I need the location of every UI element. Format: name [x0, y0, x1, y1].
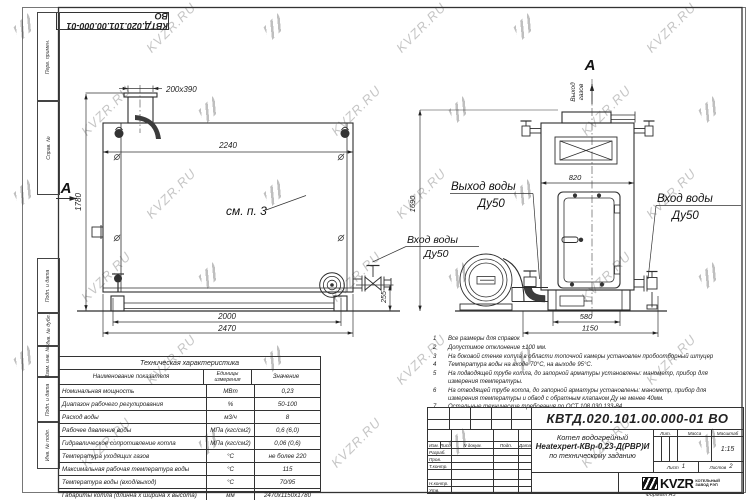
tech-table-header: Наименование показателя Единицы измерени…: [59, 370, 320, 385]
company-logo: KVZR КОТЕЛЬНЫЙ ЗАВОД РЭП: [642, 476, 720, 491]
mass-label: Масса: [677, 429, 711, 436]
table-row: Температура воды (вход/выход)°С70/95: [59, 476, 320, 489]
sig-row-prov: Пров.: [428, 455, 451, 462]
param-name: Номинальная мощность: [59, 385, 207, 397]
sig-row-razrab: Разраб.: [428, 448, 451, 455]
sig-row-nkontr: Н.контр.: [428, 479, 451, 486]
sig-row-utv: Утв.: [428, 486, 451, 493]
param-name: Максимальная рабочая температура воды: [59, 463, 207, 475]
sheets-cell: Листов 2: [698, 461, 743, 472]
table-row: Габариты котла (длинна х ширина х высота…: [59, 489, 320, 500]
boiler-side-view: [77, 85, 400, 311]
tech-table-header-cell: Единицы измерения: [204, 370, 252, 384]
title-block: КВТД.020.101.00.000-01 ВО Изм. Лист N до…: [427, 407, 744, 494]
side-column-box: Инв. № дубл.: [37, 312, 60, 347]
sig-col-list: Лист: [440, 441, 451, 448]
note-text: Температура воды на входе 70°С, на выход…: [448, 362, 737, 370]
param-value: 115: [255, 463, 320, 475]
front-overall-dim-label: 1150: [582, 324, 599, 333]
drawing-sheet: KVZR.RUKVZR.RUKVZR.RUKVZR.RUKVZR.RUKVZR.…: [0, 0, 750, 500]
note-number: 6: [433, 388, 448, 404]
company-name-line2: ЗАВОД РЭП: [695, 483, 720, 488]
water-inlet-left-label: Вход воды: [407, 234, 458, 246]
side-column-label: Справ. №: [46, 136, 52, 160]
note-number: 1: [433, 336, 448, 344]
param-unit: °С: [207, 463, 255, 475]
param-unit: МВт: [207, 385, 255, 397]
param-value: 50-100: [255, 398, 320, 410]
side-column-box: Подп. и дата: [37, 258, 60, 314]
table-row: Номинальная мощностьМВт0,23: [59, 385, 320, 398]
sheet-label: Лист: [667, 465, 679, 470]
doc-number: КВТД.020.101.00.000-01 ВО: [547, 411, 729, 426]
front-base-dim-label: 580: [580, 312, 593, 321]
kvzr-logo-icon: [642, 477, 658, 490]
side-column-label: Перв. примен.: [46, 40, 52, 74]
param-unit: МПа (кгс/см2): [207, 437, 255, 449]
sheet-value: 1: [682, 464, 685, 470]
param-unit: МПа (кгс/см2): [207, 424, 255, 436]
product-name-line2: Heatexpert-КВр-0,23-Д(РВР)И: [536, 442, 650, 452]
param-value: 0,6 (6,0): [255, 424, 320, 436]
height-dim-label: 1780: [74, 193, 83, 211]
side-column-box: Перв. примен.: [37, 12, 60, 102]
param-value: 70/95: [255, 476, 320, 488]
note-text: На отводящей трубе котла, до запорной ар…: [448, 388, 737, 404]
note-number: 5: [433, 371, 448, 387]
note-number: 3: [433, 354, 448, 362]
gas-outlet-label-1: Выход: [569, 82, 577, 102]
inner-width-dim-label: 2240: [218, 141, 237, 150]
water-inlet-right-dn: Ду50: [670, 210, 699, 222]
sig-col-izm: Изм.: [428, 441, 440, 448]
tech-table-title: Техническая характеристика: [59, 357, 320, 370]
param-value: 0,23: [255, 385, 320, 397]
param-value: 8: [255, 411, 320, 423]
param-name: Диапазон рабочего регулирования: [59, 398, 207, 410]
table-row: Температура уходящих газов°Сне более 220: [59, 450, 320, 463]
right-dim-label: 255: [381, 291, 388, 304]
side-column-label: Взам. инв. №: [46, 345, 52, 377]
param-name: Габариты котла (длинна х ширина х высота…: [59, 489, 207, 500]
overall-dim-label: 2470: [217, 324, 236, 333]
note-number: 4: [433, 362, 448, 370]
note-item: 3На боковой стенке котла в области топоч…: [433, 354, 737, 362]
note-item: 5На подводящей трубе котла, до запорной …: [433, 371, 737, 387]
sig-row-tkontr: Т.контр.: [428, 462, 451, 469]
callout-see-p3: см. п. 3: [226, 204, 267, 218]
param-value: 2470х1150х1780: [255, 489, 320, 500]
corner-stamp-doc-number: КВТД.020.101.00.000-01 ВО: [57, 13, 168, 29]
gas-outlet-label-2: газов: [578, 83, 585, 100]
sheets-label: Листов: [709, 465, 726, 470]
note-item: 4Температура воды на входе 70°С, на выхо…: [433, 362, 737, 370]
param-unit: °С: [207, 450, 255, 462]
table-row: Рабочее давление водыМПа (кгс/см2)0,6 (6…: [59, 424, 320, 437]
tech-table: Техническая характеристика Наименование …: [58, 356, 321, 492]
side-column-label: Подп. и дата: [46, 270, 52, 302]
notes-list: 1Все размеры для справок 2Допустимое отк…: [433, 336, 737, 413]
top-width-dim-label: 820: [569, 173, 582, 182]
side-column-box: Взам. инв. №: [37, 345, 60, 378]
param-name: Рабочее давление воды: [59, 424, 207, 436]
table-row: Диапазон рабочего регулирования%50-100: [59, 398, 320, 411]
param-unit: мм: [207, 489, 255, 500]
note-text: На боковой стенке котла в области топочн…: [448, 354, 737, 362]
scale-value: 1:15: [711, 436, 743, 461]
kvzr-logo-text: KVZR: [660, 476, 693, 491]
param-unit: м3/ч: [207, 411, 255, 423]
param-value: не более 220: [255, 450, 320, 462]
company-cell: KVZR КОТЕЛЬНЫЙ ЗАВОД РЭП: [618, 472, 743, 493]
water-outlet-dn: Ду50: [476, 198, 505, 210]
water-outlet-label: Выход воды: [451, 181, 516, 193]
param-value: 0,06 (0,6): [255, 437, 320, 449]
table-row: Расход водым3/ч8: [59, 411, 320, 424]
tech-table-header-cell: Наименование показателя: [59, 370, 204, 384]
note-item: 1Все размеры для справок: [433, 336, 737, 344]
note-text: На подводящей трубе котла, до запорной а…: [448, 371, 737, 387]
side-column-box: Инв. № подл.: [37, 421, 60, 469]
note-text: Все размеры для справок: [448, 336, 737, 344]
lit-label: Лит.: [653, 429, 677, 436]
param-name: Температура уходящих газов: [59, 450, 207, 462]
note-text: Допустимое отклонение ±100 мм.: [448, 345, 737, 353]
chimney-dim-label: 200х390: [165, 85, 197, 94]
water-inlet-left-dn: Ду50: [423, 248, 449, 260]
side-column-label: Инв. № дубл.: [46, 314, 52, 346]
section-a-label-left: А: [60, 180, 72, 197]
scale-label: Масштаб: [711, 429, 743, 436]
param-name: Гидравлическое сопротивление котла: [59, 437, 207, 449]
section-a-label-top: А: [584, 57, 596, 74]
side-column-box: Справ. №: [37, 100, 60, 195]
sig-col-podp: Подп.: [493, 441, 518, 448]
param-name: Расход воды: [59, 411, 207, 423]
sheets-value: 2: [729, 464, 732, 470]
format-label: Формат А3: [598, 492, 723, 498]
sig-col-dokum: N докум.: [451, 441, 493, 448]
side-column-label: Подп. и дата: [46, 383, 52, 415]
note-number: 2: [433, 345, 448, 353]
table-row: Гидравлическое сопротивление котлаМПа (к…: [59, 437, 320, 450]
water-inlet-right-label: Вход воды: [657, 193, 713, 205]
sig-col-data: Дата: [518, 441, 531, 448]
product-name-line3: по техническому заданию: [549, 452, 636, 461]
base-dim-label: 2000: [217, 312, 236, 321]
corner-stamp: КВТД.020.101.00.000-01 ВО: [56, 12, 169, 30]
param-unit: %: [207, 398, 255, 410]
note-item: 2Допустимое отклонение ±100 мм.: [433, 345, 737, 353]
product-name-line1: Котел водогрейный: [557, 433, 628, 442]
param-unit: °С: [207, 476, 255, 488]
side-column-label: Инв. № подл.: [46, 429, 52, 461]
note-item: 6На отводящей трубе котла, до запорной а…: [433, 388, 737, 404]
table-row: Максимальная рабочая температура воды°С1…: [59, 463, 320, 476]
param-name: Температура воды (вход/выход): [59, 476, 207, 488]
sheet-cell: Лист 1: [653, 461, 698, 472]
side-column-box: Подп. и дата: [37, 376, 60, 423]
doc-number-cell: КВТД.020.101.00.000-01 ВО: [531, 408, 743, 429]
front-height-dim-label: 1690: [408, 195, 417, 213]
tech-table-header-cell: Значение: [252, 370, 320, 384]
product-name-cell: Котел водогрейный Heatexpert-КВр-0,23-Д(…: [531, 429, 653, 472]
